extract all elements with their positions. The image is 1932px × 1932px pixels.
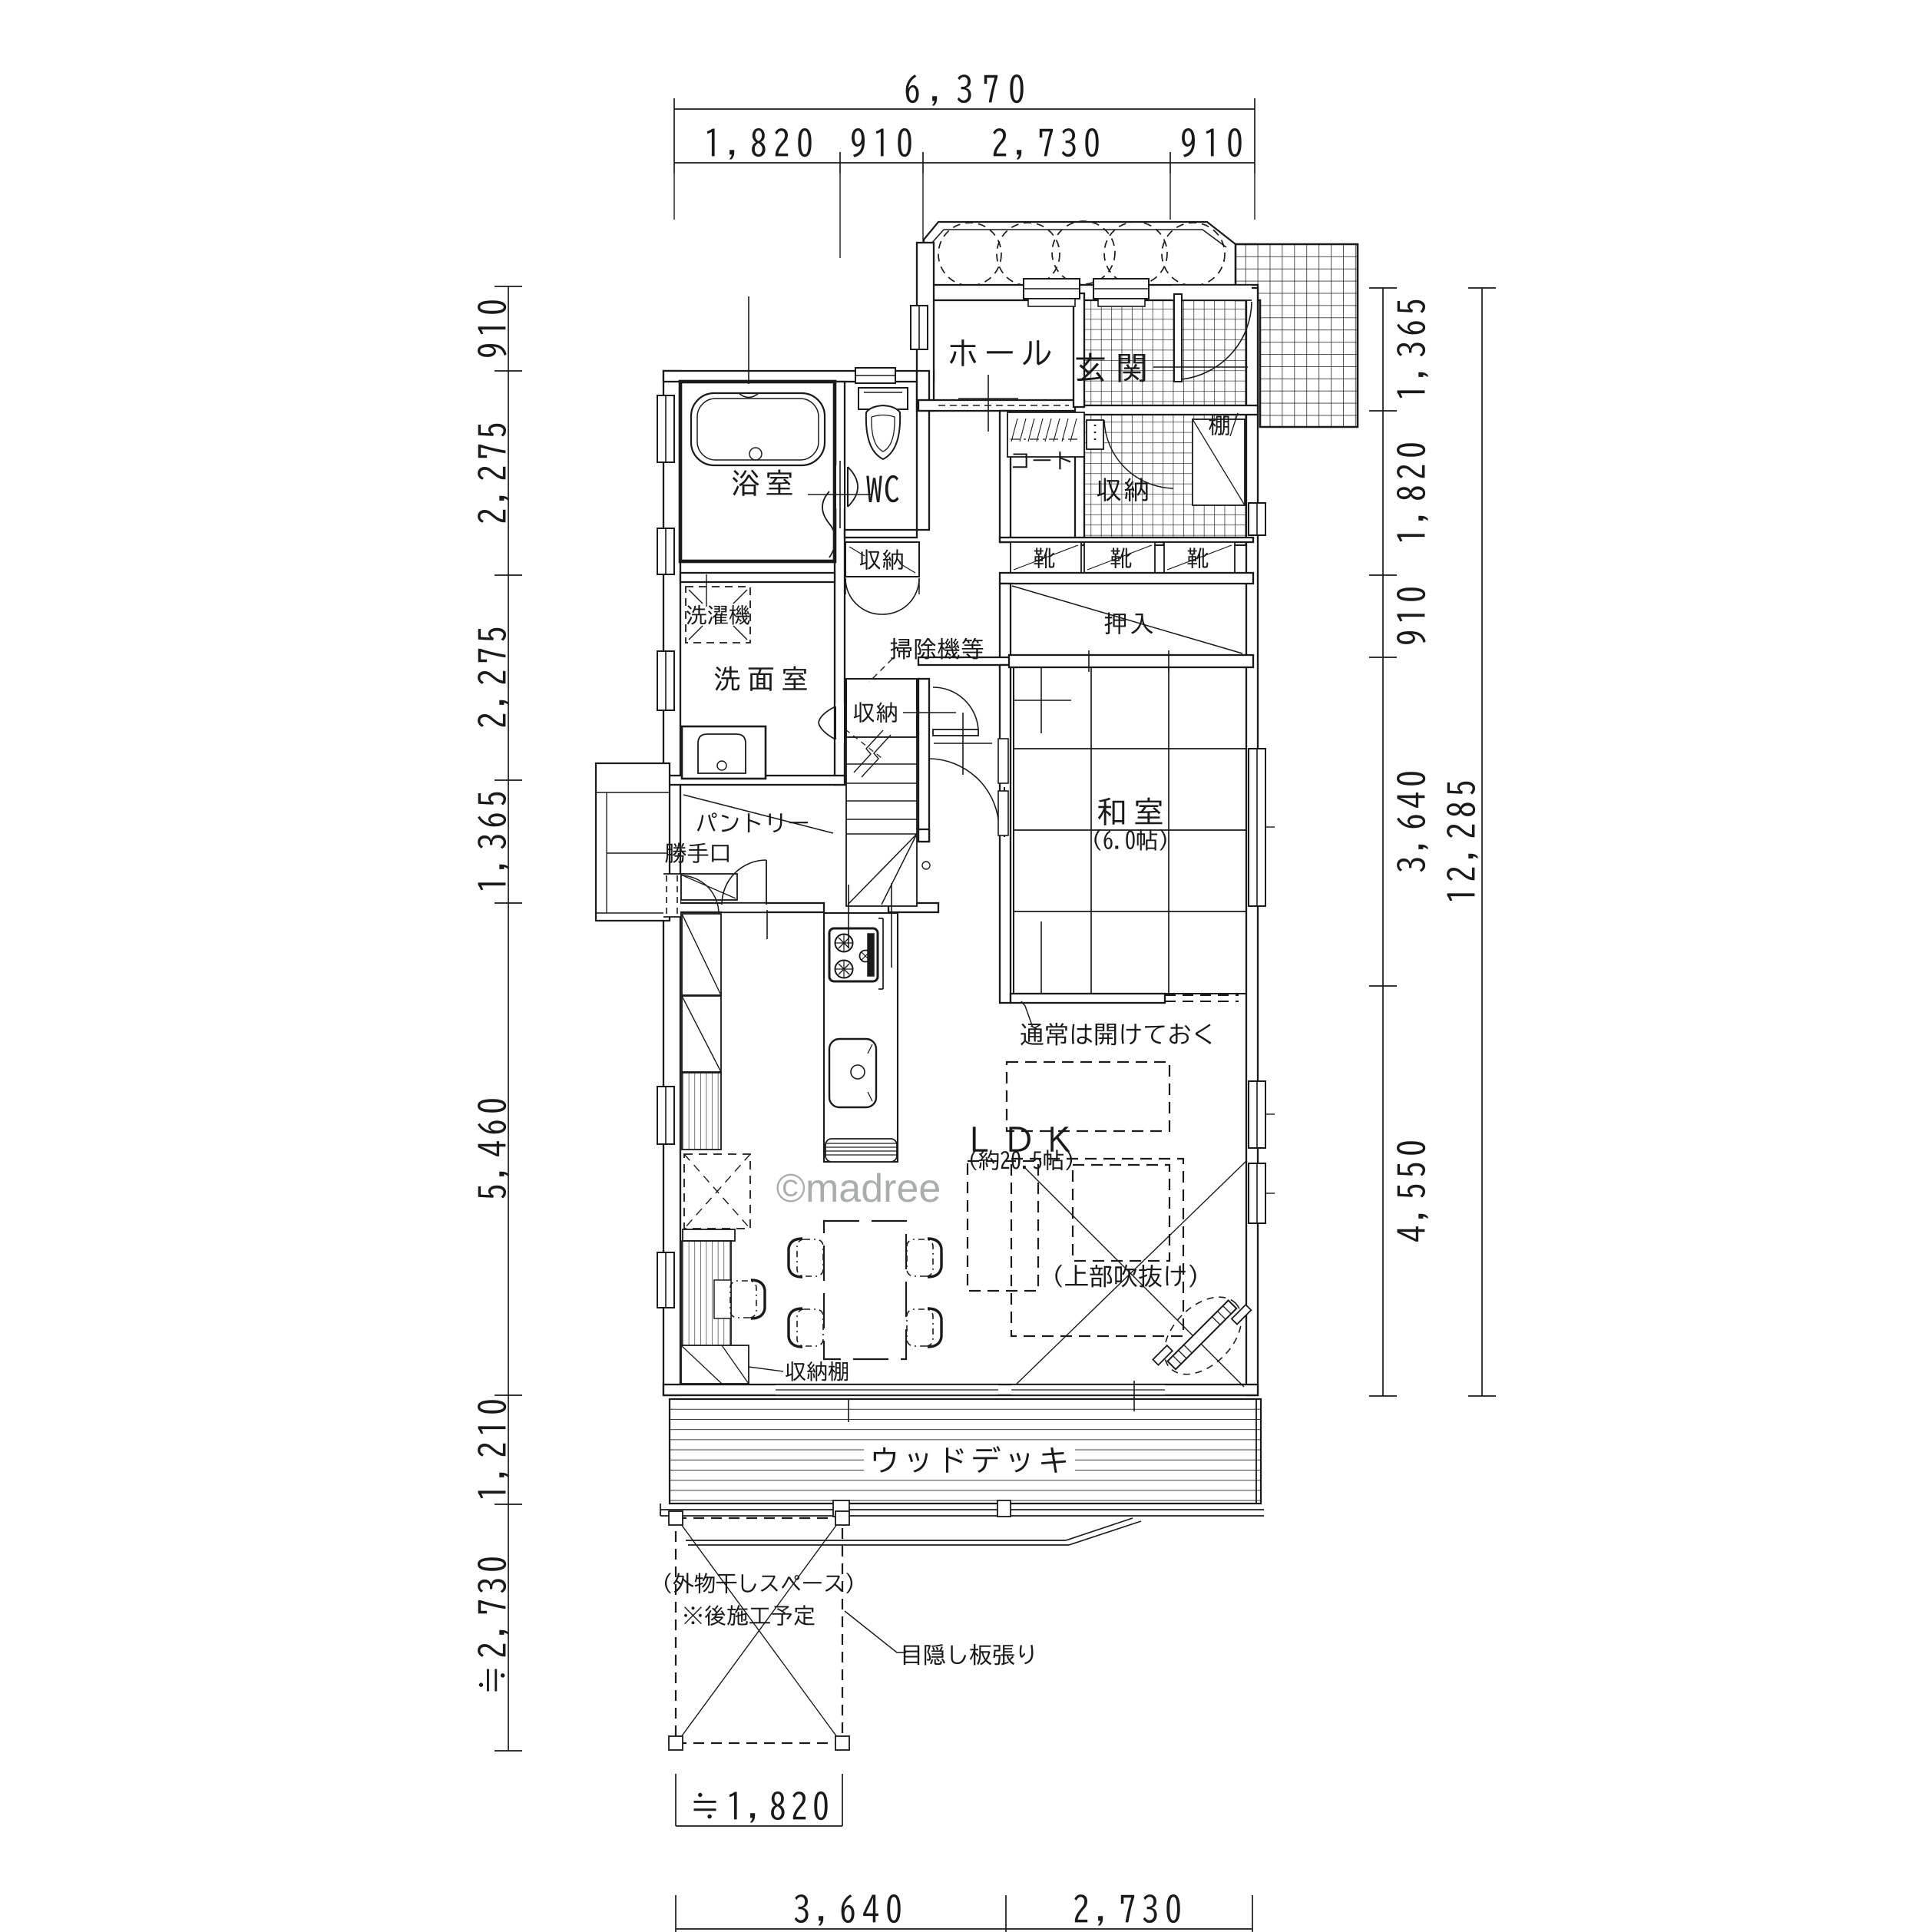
svg-text:©madree: ©madree <box>776 1166 941 1211</box>
